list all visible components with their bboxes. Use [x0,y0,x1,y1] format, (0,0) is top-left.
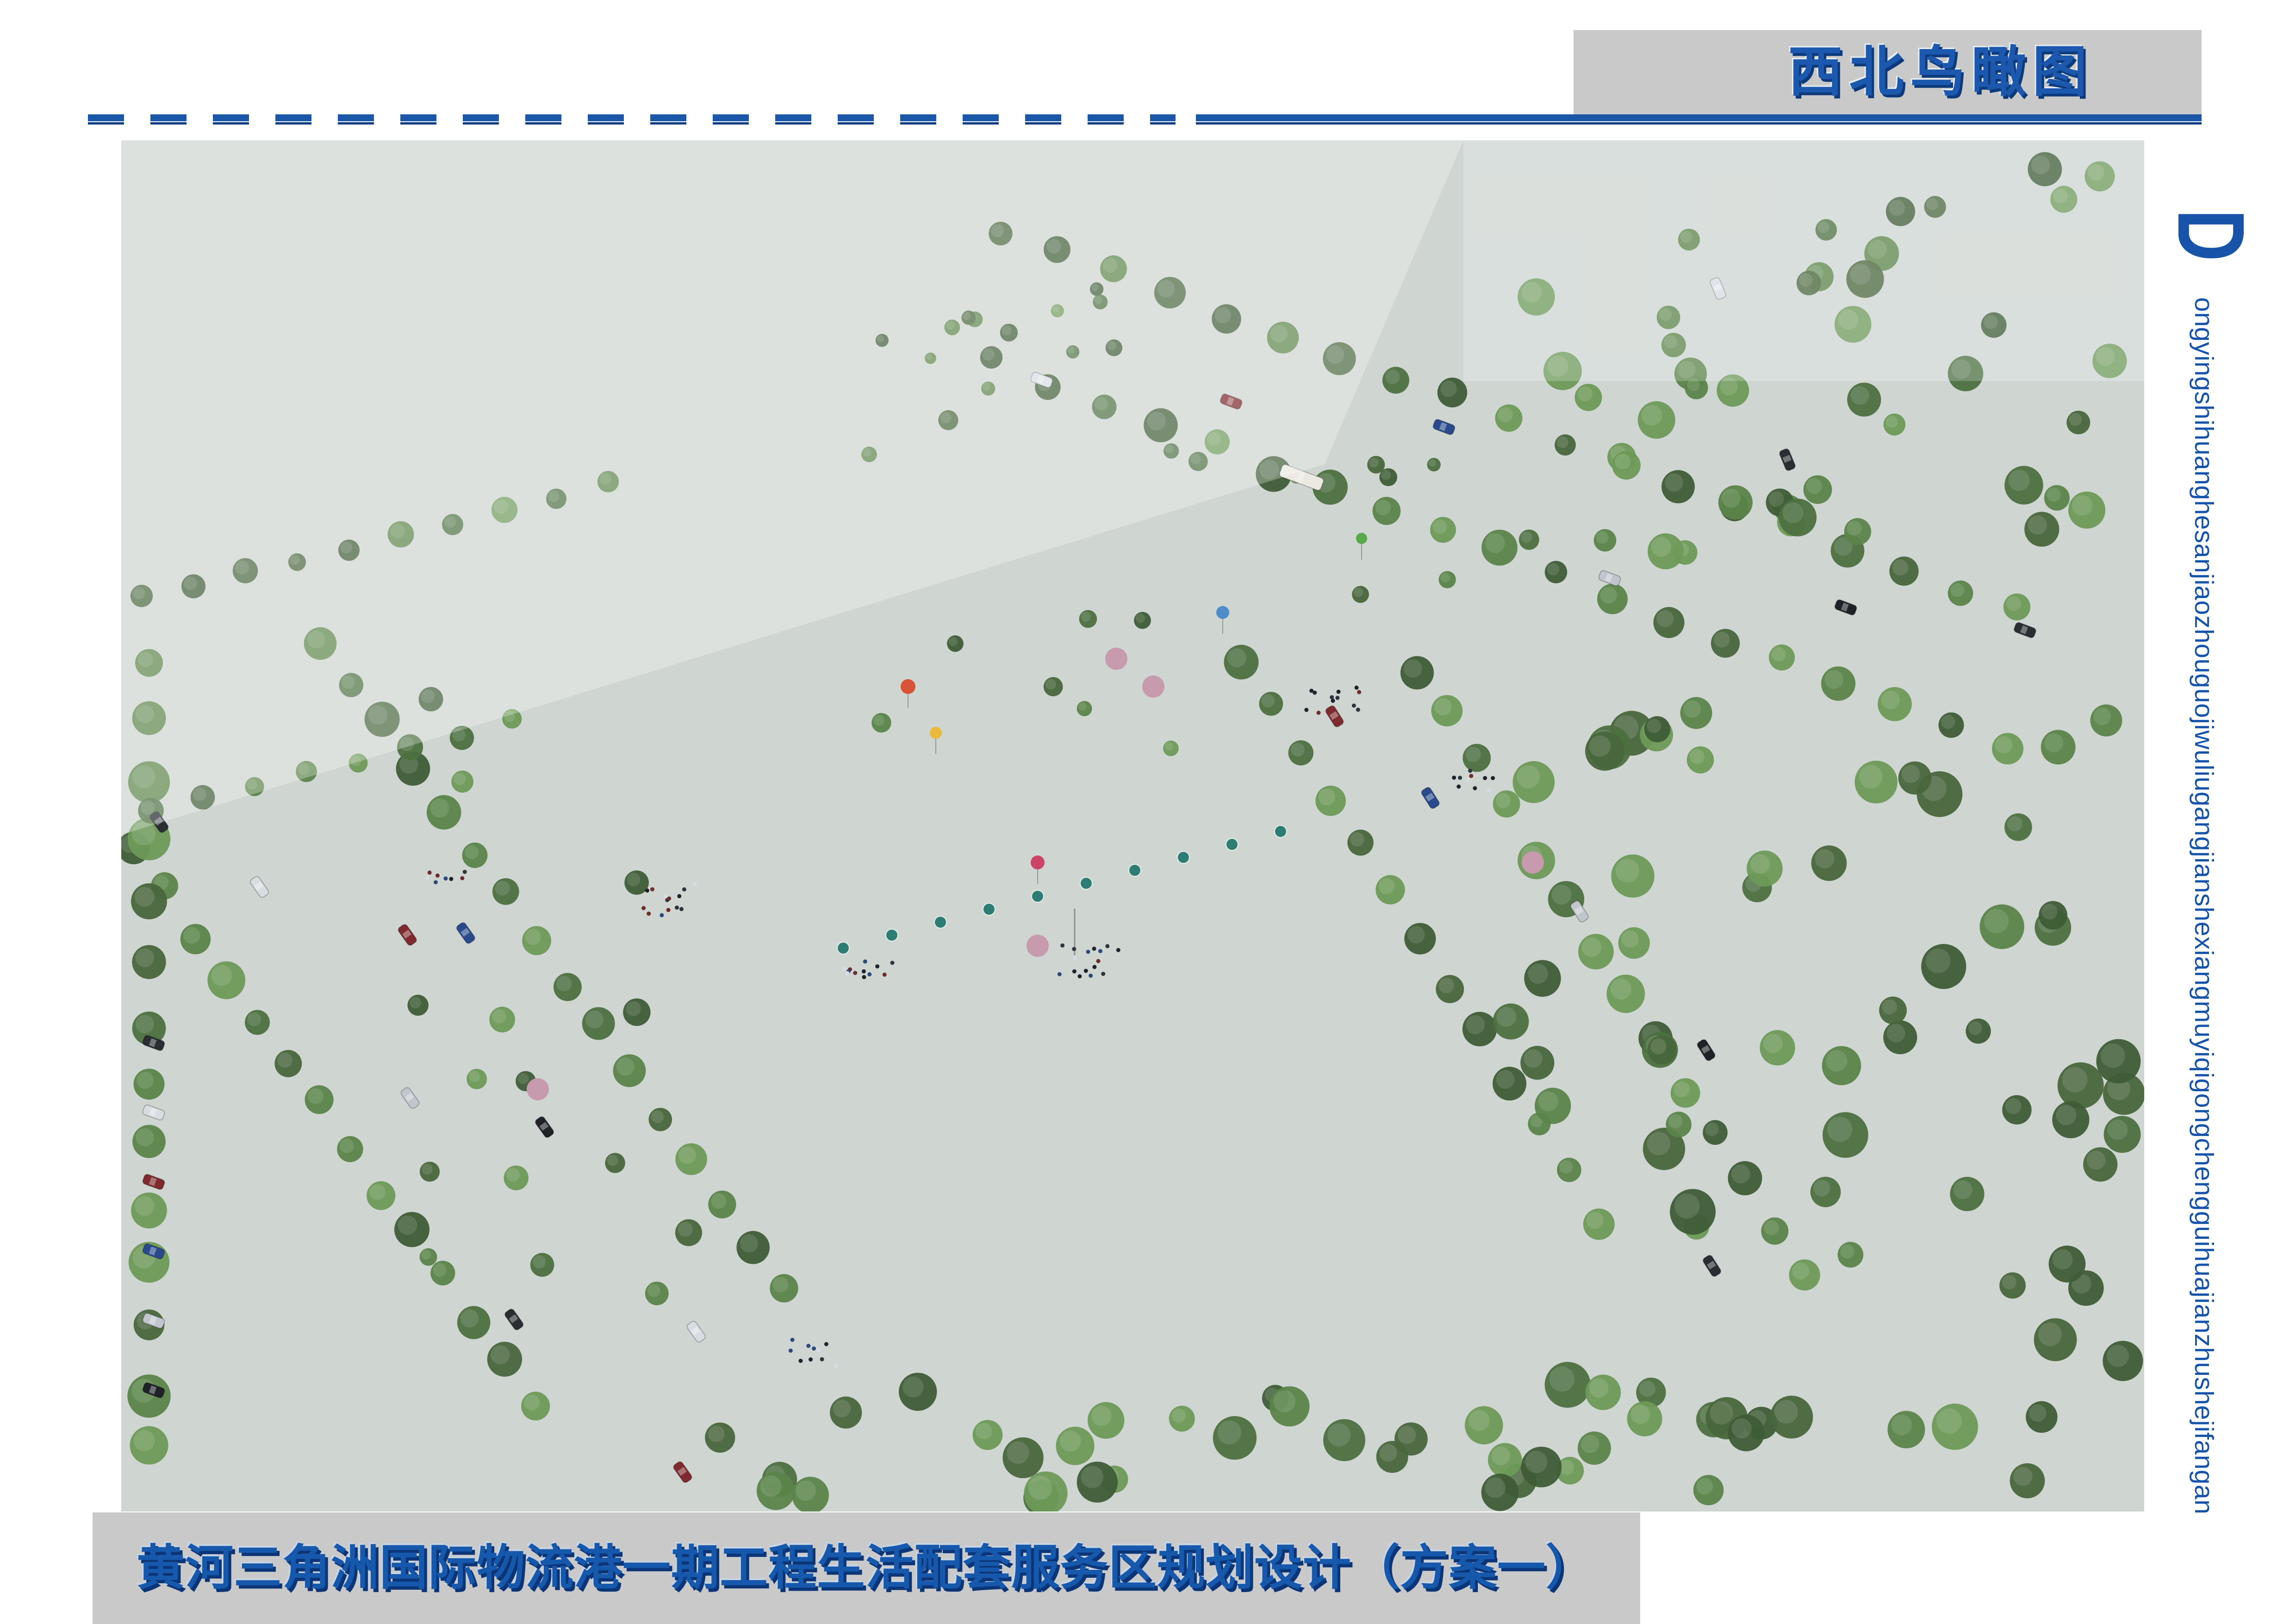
footer-bar: 黄河三角洲国际物流港一期工程生活配套服务区规划设计（方案一） [93,1512,1640,1624]
side-caption-initial: D [2162,209,2259,262]
aerial-rendering [121,140,2144,1512]
header-rule-dashed-shadow [88,122,1176,125]
page: 西北鸟瞰图 D ongyingshihuanghesanjiaozhouguoj… [0,0,2296,1624]
side-caption-pinyin: ongyingshihuanghesanjiaozhouguojiwuliuga… [2187,297,2221,1575]
project-title: 黄河三角洲国际物流港一期工程生活配套服务区规划设计（方案一） [93,1512,1640,1624]
header-rule-dashed [88,114,1176,121]
view-title-panel: 西北鸟瞰图 [1574,30,2202,114]
aerial-rendering-scene [121,140,2144,1512]
header-rule-solid [1196,114,2202,125]
view-title: 西北鸟瞰图 [1574,30,2202,114]
